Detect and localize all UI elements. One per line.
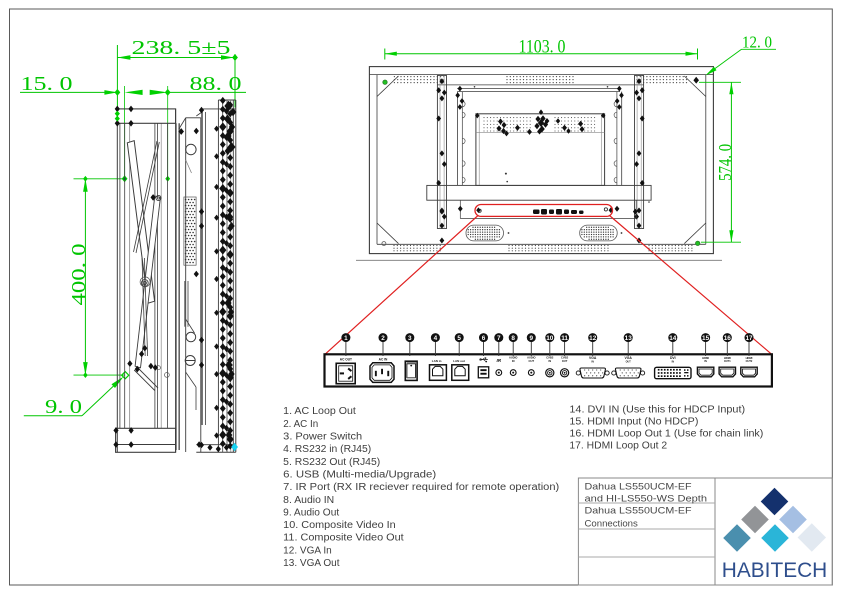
svg-text:AC IN: AC IN: [379, 357, 388, 361]
svg-text:15. HDMI Input (No HDCP): 15. HDMI Input (No HDCP): [569, 417, 698, 428]
svg-text:10: 10: [546, 335, 554, 342]
svg-text:OUT: OUT: [626, 361, 632, 364]
svg-text:574. 0: 574. 0: [715, 144, 735, 181]
svg-text:IN: IN: [704, 360, 707, 363]
svg-text:400. 0: 400. 0: [68, 244, 90, 306]
svg-text:10. Composite Video In: 10. Composite Video In: [283, 520, 396, 531]
svg-text:5. RS232 Out (RJ45): 5. RS232 Out (RJ45): [283, 457, 380, 468]
svg-text:OUT1: OUT1: [724, 360, 731, 363]
svg-text:15. 0: 15. 0: [21, 73, 73, 95]
svg-text:12. 0: 12. 0: [742, 33, 772, 52]
svg-text:HABITECH: HABITECH: [722, 558, 828, 582]
svg-text:OUT2: OUT2: [746, 360, 753, 363]
svg-text:4: 4: [434, 335, 438, 342]
svg-text:IN: IN: [512, 359, 515, 363]
svg-text:4. RS232 in (RJ45): 4. RS232 in (RJ45): [283, 444, 371, 455]
svg-text:7: 7: [497, 335, 501, 342]
svg-text:Dahua LS550UCM-EF: Dahua LS550UCM-EF: [585, 506, 692, 516]
svg-text:DVI: DVI: [670, 356, 676, 360]
svg-text:1: 1: [344, 335, 348, 342]
svg-text:VGA: VGA: [625, 356, 633, 360]
svg-text:6. USB (Multi-media/Upgrade): 6. USB (Multi-media/Upgrade): [283, 469, 436, 480]
svg-text:2: 2: [381, 335, 385, 342]
svg-text:1103. 0: 1103. 0: [519, 37, 566, 57]
svg-text:5: 5: [457, 335, 461, 342]
svg-text:LAN in: LAN in: [432, 359, 442, 363]
svg-text:12: 12: [589, 335, 597, 342]
svg-text:16: 16: [724, 335, 732, 342]
svg-text:7. IR Port (RX IR reciever req: 7. IR Port (RX IR reciever required for …: [283, 482, 559, 493]
svg-text:15: 15: [702, 335, 710, 342]
svg-text:8. Audio IN: 8. Audio IN: [283, 495, 334, 506]
svg-text:OUT: OUT: [562, 359, 568, 363]
svg-text:and HI-LS550-WS Depth: and HI-LS550-WS Depth: [585, 493, 708, 503]
svg-text:16. HDMI Loop Out 1 (Use for c: 16. HDMI Loop Out 1 (Use for chain link): [569, 429, 763, 440]
svg-text:3: 3: [408, 335, 412, 342]
svg-text:11. Composite Video Out: 11. Composite Video Out: [283, 533, 404, 544]
svg-text:14: 14: [669, 335, 677, 342]
svg-text:9. 0: 9. 0: [45, 396, 82, 418]
svg-text:13: 13: [625, 335, 633, 342]
svg-text:IN: IN: [591, 361, 594, 364]
svg-text:9. Audio Out: 9. Audio Out: [283, 507, 339, 518]
svg-text:3. Power Switch: 3. Power Switch: [283, 432, 362, 443]
svg-text:IR: IR: [497, 358, 502, 363]
svg-text:6: 6: [482, 335, 486, 342]
svg-text:AC OUT: AC OUT: [340, 357, 352, 361]
svg-text:Dahua LS550UCM-EF: Dahua LS550UCM-EF: [585, 482, 692, 492]
svg-text:88. 0: 88. 0: [190, 73, 242, 95]
svg-text:OUT: OUT: [529, 359, 535, 363]
svg-text:12. VGA In: 12. VGA In: [283, 545, 332, 556]
svg-text:IN: IN: [672, 361, 675, 364]
svg-text:8: 8: [511, 335, 515, 342]
svg-text:17: 17: [745, 335, 753, 342]
svg-text:2. AC In: 2. AC In: [283, 419, 318, 430]
svg-text:Connections: Connections: [585, 519, 639, 529]
svg-text:1. AC Loop Out: 1. AC Loop Out: [283, 406, 356, 417]
svg-text:VGA: VGA: [589, 356, 597, 360]
svg-text:IN: IN: [549, 359, 552, 363]
svg-text:238. 5±5: 238. 5±5: [132, 37, 231, 59]
svg-text:14. DVI IN (Use this for HDCP: 14. DVI IN (Use this for HDCP Input): [569, 405, 745, 416]
svg-text:9: 9: [530, 335, 534, 342]
svg-text:13. VGA Out: 13. VGA Out: [283, 558, 340, 569]
svg-text:17. HDMI Loop Out 2: 17. HDMI Loop Out 2: [569, 440, 667, 451]
svg-text:LAN out: LAN out: [453, 359, 465, 363]
svg-text:11: 11: [561, 335, 568, 342]
